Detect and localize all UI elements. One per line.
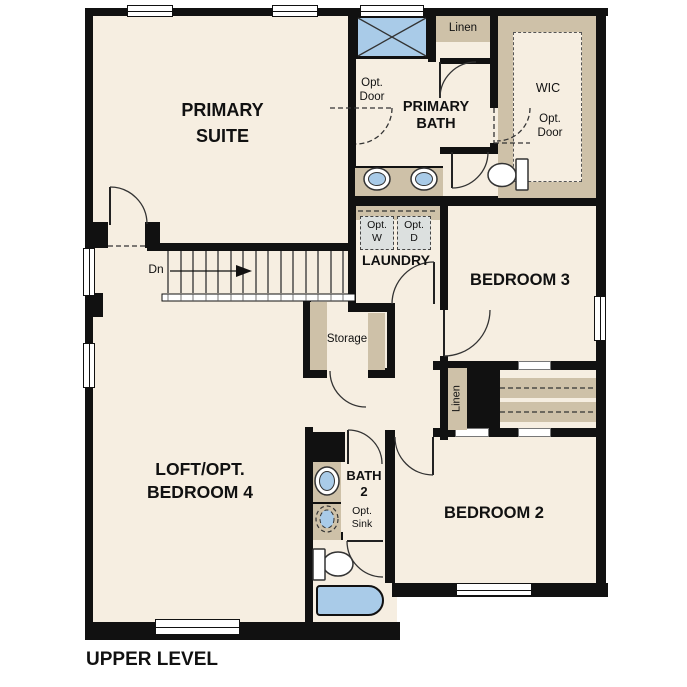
plan-title: UPPER LEVEL	[86, 648, 326, 672]
floor-plan-canvas: PRIMARY SUITE Opt. Door PRIMARY BATH Lin…	[0, 0, 687, 687]
bath2-opt-sink	[316, 506, 338, 532]
room-label-primary-suite: PRIMARY SUITE	[130, 98, 315, 149]
room-label-bedroom3: BEDROOM 3	[444, 270, 596, 291]
room-label-laundry: LAUNDRY	[350, 252, 442, 270]
stairs	[162, 251, 355, 301]
opt-washer-label: Opt. W	[360, 219, 394, 245]
bath2-sink	[315, 467, 339, 495]
linen-label: Linen	[436, 21, 490, 35]
room-label-bath2: BATH 2	[341, 468, 387, 501]
storage-label: Storage	[316, 332, 378, 346]
toilet	[313, 549, 353, 580]
toilet	[488, 159, 528, 190]
shower-glass-x	[358, 18, 426, 56]
double-sinks	[364, 168, 437, 190]
opt-door-label: Opt. Door	[348, 76, 396, 105]
room-label-wic: WIC	[520, 81, 576, 97]
room-label-primary-bath: PRIMARY BATH	[390, 99, 482, 134]
linen-closet-label: Linen	[448, 368, 467, 430]
room-label-loft: LOFT/OPT. BEDROOM 4	[105, 458, 295, 504]
opt-sink-label: Opt. Sink	[340, 505, 384, 531]
opt-dryer-label: Opt. D	[397, 219, 431, 245]
stairs-down-arrow	[236, 265, 252, 277]
stairs-dn-label: Dn	[143, 262, 169, 277]
opt-door-label: Opt. Door	[522, 112, 578, 141]
room-label-bedroom2: BEDROOM 2	[408, 503, 580, 524]
